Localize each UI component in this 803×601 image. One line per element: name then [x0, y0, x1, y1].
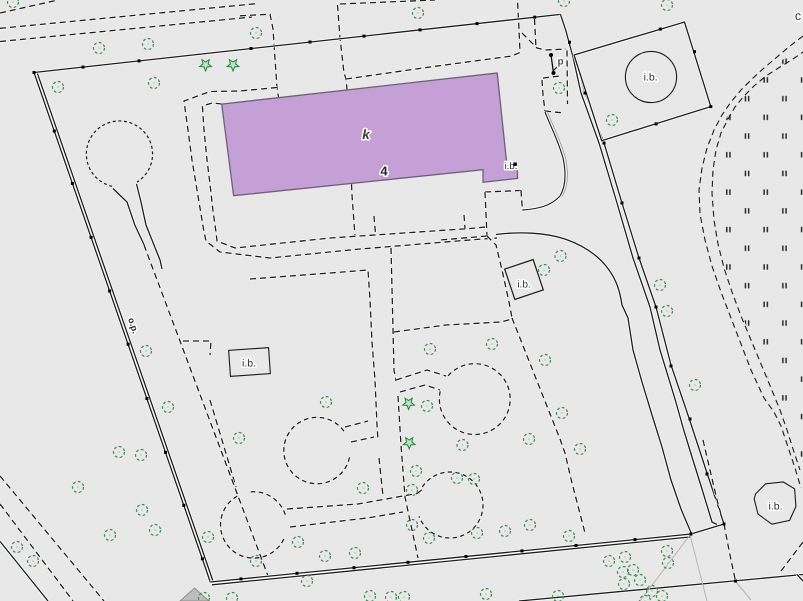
svg-text:4: 4 — [380, 164, 388, 179]
svg-text:p: p — [557, 57, 563, 68]
svg-text:i.b.: i.b. — [644, 72, 658, 84]
svg-text:i.b.: i.b. — [768, 501, 782, 513]
svg-text:i.b.: i.b. — [517, 280, 530, 291]
svg-text:c: c — [795, 9, 801, 23]
svg-text:i.b.: i.b. — [242, 358, 256, 370]
